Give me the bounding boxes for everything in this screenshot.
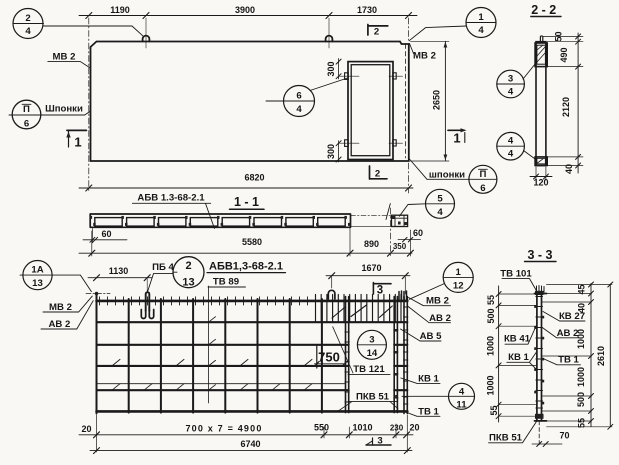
svg-text:1000: 1000 [576,367,586,387]
svg-text:20: 20 [81,424,91,434]
svg-text:4: 4 [25,26,31,37]
svg-text:АБВ1,3-68-2.1: АБВ1,3-68-2.1 [209,261,283,273]
svg-text:20: 20 [409,423,419,433]
svg-text:11: 11 [456,399,467,410]
svg-text:2: 2 [375,169,380,180]
svg-text:490: 490 [559,47,569,62]
svg-text:1670: 1670 [361,263,381,273]
svg-text:500: 500 [486,308,496,323]
svg-text:4: 4 [437,207,443,218]
svg-text:1000: 1000 [486,336,496,356]
svg-text:ПБ 4: ПБ 4 [152,262,174,273]
svg-text:120: 120 [533,178,548,188]
svg-text:КВ 41: КВ 41 [504,334,531,345]
svg-text:ПКВ 51: ПКВ 51 [489,432,523,443]
svg-text:МВ 2: МВ 2 [413,51,436,62]
svg-text:12: 12 [453,280,464,291]
svg-text:КВ 27: КВ 27 [559,311,585,322]
svg-text:300: 300 [326,144,336,159]
svg-text:1: 1 [74,135,81,150]
svg-text:АВ 2: АВ 2 [48,319,70,330]
svg-text:60: 60 [101,229,111,239]
svg-text:6820: 6820 [244,173,264,183]
svg-text:П: П [23,104,30,115]
svg-text:2650: 2650 [432,90,442,110]
svg-text:ТВ 101: ТВ 101 [500,269,532,280]
svg-text:50: 50 [554,31,564,41]
svg-text:МВ 2: МВ 2 [426,296,449,307]
svg-text:6740: 6740 [240,439,260,449]
svg-text:350: 350 [393,242,407,251]
svg-text:ТВ 89: ТВ 89 [213,276,239,287]
svg-text:4: 4 [459,386,465,397]
svg-text:45: 45 [577,284,587,294]
svg-text:ТВ 1: ТВ 1 [558,355,579,366]
svg-text:АВ 2: АВ 2 [557,328,579,339]
svg-text:МВ 2: МВ 2 [49,302,72,313]
svg-text:55: 55 [489,405,499,415]
svg-text:4: 4 [508,149,514,160]
svg-text:1730: 1730 [357,5,377,15]
svg-text:П: П [479,169,486,180]
svg-text:1: 1 [456,267,462,278]
svg-text:2: 2 [185,260,191,272]
svg-text:1: 1 [453,131,460,146]
svg-text:5580: 5580 [242,237,262,247]
svg-text:АВ 5: АВ 5 [420,331,443,342]
svg-text:500: 500 [576,392,586,407]
svg-text:70: 70 [559,431,569,441]
svg-text:2: 2 [374,27,379,38]
svg-text:55: 55 [486,295,496,305]
svg-text:1190: 1190 [110,5,130,15]
svg-text:4: 4 [508,87,514,98]
svg-text:5: 5 [437,193,443,204]
svg-text:550: 550 [314,423,329,433]
svg-text:6: 6 [296,91,301,102]
svg-text:6: 6 [480,183,485,194]
svg-text:4: 4 [508,136,514,147]
svg-text:КВ 1: КВ 1 [508,352,529,363]
svg-text:1130: 1130 [109,266,129,276]
svg-text:6: 6 [24,119,29,130]
svg-text:ТВ 121: ТВ 121 [353,364,385,375]
svg-text:890: 890 [364,239,379,249]
svg-text:60: 60 [413,228,423,238]
svg-text:3: 3 [508,74,513,85]
svg-text:1А: 1А [31,265,43,276]
svg-text:1: 1 [478,12,484,23]
svg-text:4: 4 [296,104,302,115]
svg-text:2: 2 [25,13,30,24]
svg-text:3900: 3900 [235,5,255,15]
svg-text:3 - 3: 3 - 3 [527,248,552,262]
svg-text:14: 14 [367,348,378,359]
svg-text:Шпонки: Шпонки [45,104,83,115]
svg-text:2610: 2610 [596,346,606,366]
svg-text:2120: 2120 [561,97,571,117]
svg-text:3: 3 [377,436,382,447]
svg-text:230: 230 [390,424,404,433]
svg-text:1 - 1: 1 - 1 [234,195,259,209]
svg-text:300: 300 [326,61,336,76]
svg-text:700 x 7 = 4900: 700 x 7 = 4900 [185,424,262,434]
svg-text:КВ 1: КВ 1 [418,374,439,385]
svg-text:55: 55 [577,418,587,428]
svg-text:2 - 2: 2 - 2 [531,3,556,17]
svg-text:40: 40 [564,164,574,174]
svg-text:3: 3 [377,285,383,297]
svg-text:4: 4 [478,25,484,36]
svg-text:ПКВ 51: ПКВ 51 [356,391,390,402]
svg-text:750: 750 [318,350,340,365]
svg-text:1000: 1000 [486,375,496,395]
svg-text:ТВ 1: ТВ 1 [418,406,439,417]
svg-text:МВ 2: МВ 2 [53,52,76,63]
svg-text:1010: 1010 [352,423,372,433]
svg-text:АБВ 1.3-68-2.1: АБВ 1.3-68-2.1 [137,193,205,204]
svg-text:13: 13 [32,278,43,289]
svg-text:13: 13 [182,277,194,289]
svg-text:3: 3 [369,334,374,345]
